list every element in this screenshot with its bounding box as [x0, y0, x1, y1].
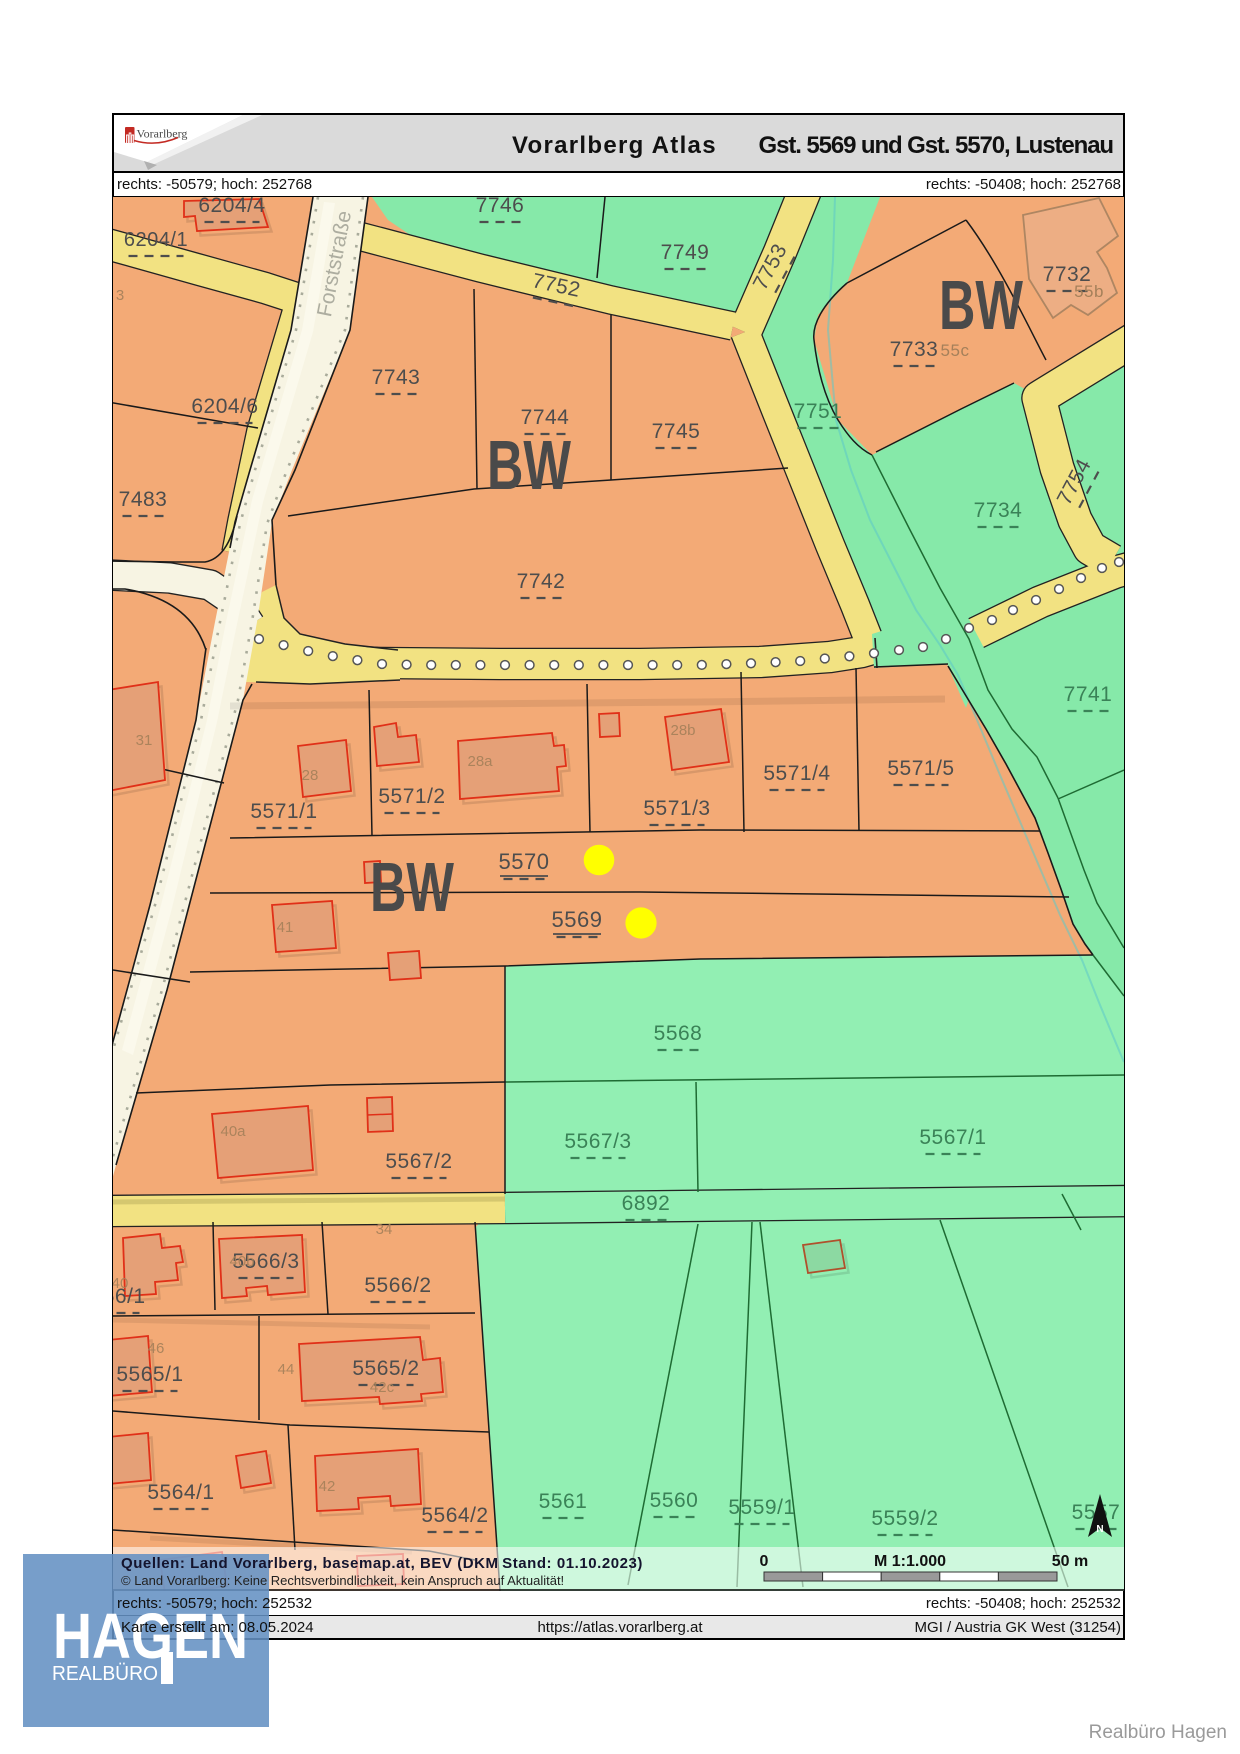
svg-text:5567/1: 5567/1	[919, 1126, 986, 1149]
svg-text:7751: 7751	[794, 400, 843, 423]
svg-text:7733: 7733	[890, 338, 939, 361]
svg-text:28b: 28b	[670, 722, 695, 739]
svg-text:34: 34	[376, 1221, 393, 1238]
svg-text:BW: BW	[370, 848, 454, 926]
svg-text:5571/3: 5571/3	[643, 797, 710, 820]
svg-text:5560: 5560	[650, 1489, 699, 1512]
svg-text:55b: 55b	[1074, 282, 1104, 301]
svg-text:5561: 5561	[539, 1490, 588, 1513]
svg-text:5570: 5570	[499, 849, 550, 874]
svg-text:7483: 7483	[119, 488, 168, 511]
svg-text:REALBÜRO: REALBÜRO	[52, 1663, 158, 1685]
svg-text:5564/2: 5564/2	[421, 1504, 488, 1527]
svg-text:5559/2: 5559/2	[871, 1507, 938, 1530]
svg-text:5564/1: 5564/1	[147, 1481, 214, 1504]
svg-text:40a: 40a	[220, 1123, 246, 1140]
svg-text:7741: 7741	[1064, 683, 1113, 706]
svg-text:28: 28	[302, 767, 319, 784]
svg-text:Vorarlberg: Vorarlberg	[137, 127, 188, 141]
svg-text:28a: 28a	[467, 753, 493, 770]
svg-text:46: 46	[148, 1340, 165, 1357]
svg-text:7745: 7745	[652, 420, 701, 443]
svg-text:6892: 6892	[622, 1192, 671, 1215]
svg-text:7749: 7749	[661, 241, 710, 264]
svg-text:BW: BW	[487, 426, 571, 504]
svg-text:7734: 7734	[974, 499, 1023, 522]
svg-text:42c: 42c	[370, 1379, 395, 1396]
svg-text:5571/5: 5571/5	[887, 757, 954, 780]
svg-text:5567/3: 5567/3	[564, 1130, 631, 1153]
svg-text:0: 0	[760, 1553, 769, 1570]
svg-text:BW: BW	[939, 266, 1023, 344]
svg-text:6204/4: 6204/4	[198, 197, 265, 217]
svg-text:7743: 7743	[372, 366, 421, 389]
svg-text:42: 42	[319, 1478, 336, 1495]
svg-text:5565/2: 5565/2	[352, 1357, 419, 1380]
svg-text:5566/2: 5566/2	[364, 1274, 431, 1297]
svg-text:3: 3	[116, 287, 124, 304]
svg-text:5568: 5568	[654, 1022, 703, 1045]
svg-text:6204/6: 6204/6	[191, 395, 258, 418]
svg-text:5567/2: 5567/2	[385, 1150, 452, 1173]
svg-text:M 1:1.000: M 1:1.000	[874, 1553, 946, 1570]
svg-text:7746: 7746	[476, 197, 525, 217]
svg-text:50 m: 50 m	[1052, 1553, 1088, 1570]
svg-text:5571/4: 5571/4	[763, 762, 830, 785]
svg-text:5569: 5569	[552, 907, 603, 932]
svg-text:6204/1: 6204/1	[124, 229, 188, 251]
svg-text:5559/1: 5559/1	[728, 1496, 795, 1519]
svg-text:7742: 7742	[517, 570, 566, 593]
svg-text:5571/1: 5571/1	[250, 800, 317, 823]
svg-text:40b: 40b	[229, 1253, 254, 1270]
svg-text:31: 31	[136, 732, 153, 749]
svg-text:44: 44	[278, 1361, 295, 1378]
svg-text:5565/1: 5565/1	[116, 1363, 183, 1386]
svg-text:41: 41	[277, 919, 294, 936]
svg-text:40: 40	[113, 1275, 128, 1292]
svg-text:N: N	[1096, 1524, 1103, 1535]
svg-text:5571/2: 5571/2	[378, 785, 445, 808]
